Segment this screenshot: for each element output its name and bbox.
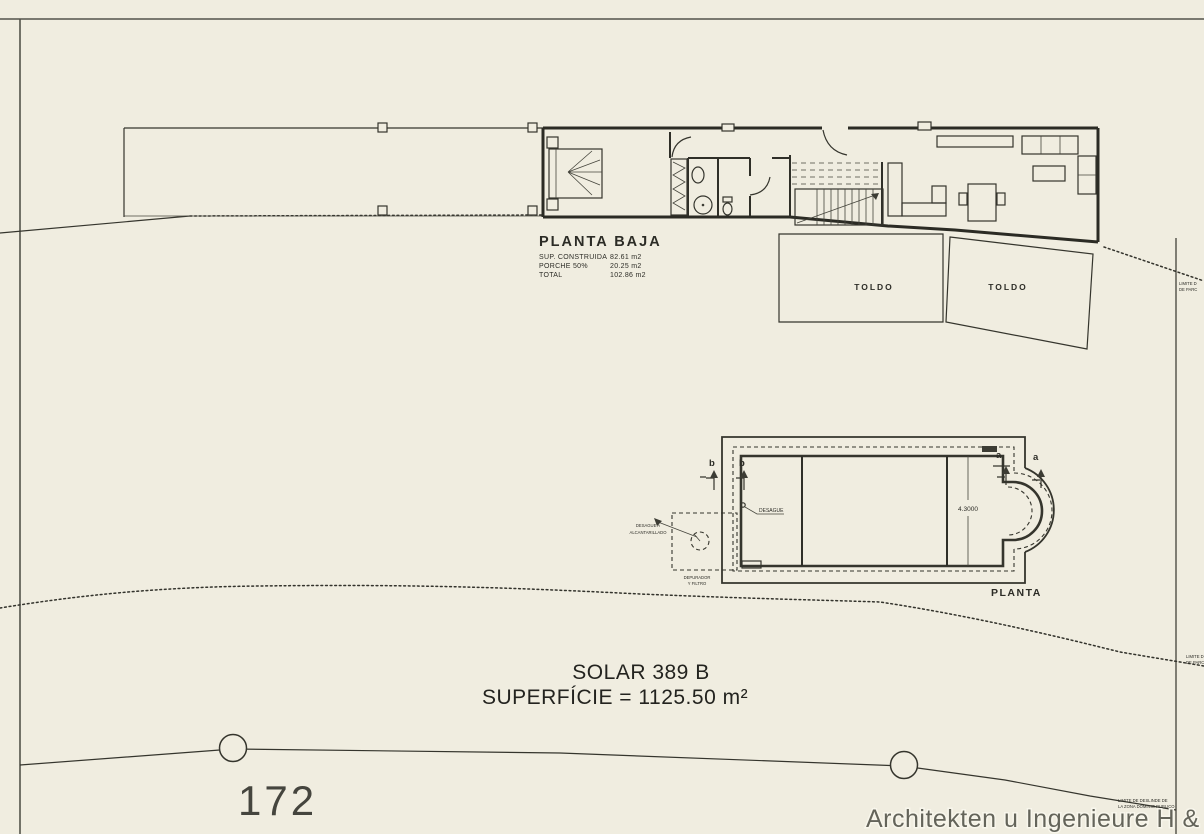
area-row-value: 82.61 m2 [610,254,642,261]
boundary-note-lower-line1: LIMITE D [1186,654,1204,659]
section-mark-label: b [709,458,715,469]
terrace-post [378,206,387,215]
plot-number: 172 [238,777,317,824]
boundary-note-lower-line2: DE PARC [1186,660,1204,665]
entrance-door-arc [823,130,847,155]
filter-note-line2: Y FILTRO [688,581,707,586]
staircase [792,163,883,225]
wardrobe [671,159,687,215]
house-terrace [124,123,543,217]
pool-steps-dashed [1008,487,1032,535]
section-mark-label: a [996,450,1002,461]
ground-floor-title: PLANTA BAJA [539,234,662,250]
house-exterior-walls [543,122,1098,242]
sideboard [937,136,1013,147]
house-interior-walls [670,130,882,225]
door-arc [750,177,770,195]
bed [547,137,602,210]
watermark: Architekten u Ingenieure H & G Invest [866,805,1204,833]
pool-plan-title: PLANTA [991,587,1042,599]
sheet-border [0,19,1204,834]
area-row-label: SUP. CONSTRUIDA [539,254,607,261]
pool-skimmer [982,446,997,452]
plot-caption: SOLAR 389 B SUPERFÍCIE = 1125.50 m² [482,661,748,709]
sewer-note-line2: ALCANTARILLADO [630,530,668,535]
awnings: TOLDO TOLDO [779,234,1093,349]
area-row-value: 20.25 m2 [610,263,642,270]
awning-left-label: TOLDO [854,282,894,292]
wall-vent [722,124,734,131]
awning-left-outline [779,234,943,322]
sewer-note-line1: DESAGUE A [636,523,660,528]
dining-table [959,184,1005,221]
pool-width-dimension: 4.3000 [958,506,978,513]
pool-basin [741,456,1042,566]
bathroom-fixtures [692,167,732,215]
section-mark-label: a [1033,452,1039,463]
coffee-table [1033,166,1065,181]
terrace-post [528,206,537,215]
area-row-label: PORCHE 50% [539,263,588,270]
sofa [1022,136,1078,154]
awning-right-label: TOLDO [988,282,1028,292]
door-arc [672,137,691,157]
boundary-note-upper-line2: DE PARC [1179,287,1197,292]
pool-plan: 4.3000 b b a a DESAGUE [630,437,1054,599]
drain-label: DESAGUE [759,508,784,514]
wall-vent [918,122,931,130]
ground-floor-title-block: PLANTA BAJA SUP. CONSTRUIDA 82.61 m2 POR… [539,234,662,279]
pool-equipment: DESAGUE A ALCANTARILLADO DEPURADOR Y FIL… [630,513,737,586]
section-mark-label: b [739,458,745,469]
plot-title: SOLAR 389 B [572,661,709,684]
awning-right-outline [946,237,1093,349]
plot-area: SUPERFÍCIE = 1125.50 m² [482,686,748,709]
site-plan-sheet: PLANTA BAJA SUP. CONSTRUIDA 82.61 m2 POR… [0,0,1204,834]
public-domain-note-line1: LIMITE DE DESLINDE DE [1118,798,1168,803]
living-room-furniture [937,136,1096,194]
area-row-value: 102.86 m2 [610,272,646,279]
right-boundary: LIMITE D DE PARC LIMITE D DE PARC LIMITE… [1118,238,1204,834]
survey-point-circle [891,752,918,779]
site-plan-drawing: PLANTA BAJA SUP. CONSTRUIDA 82.61 m2 POR… [0,0,1204,834]
survey-point-circle [220,735,247,762]
boundary-note-upper-line1: LIMITE D [1179,281,1197,286]
filter-note-line1: DEPURADOR [684,575,711,580]
house-fixtures [547,136,1096,225]
terrace-post [378,123,387,132]
terrace-post [528,123,537,132]
area-row-label: TOTAL [539,272,562,279]
drain-note: DESAGUE [741,503,784,514]
kitchen-counter [888,163,946,216]
